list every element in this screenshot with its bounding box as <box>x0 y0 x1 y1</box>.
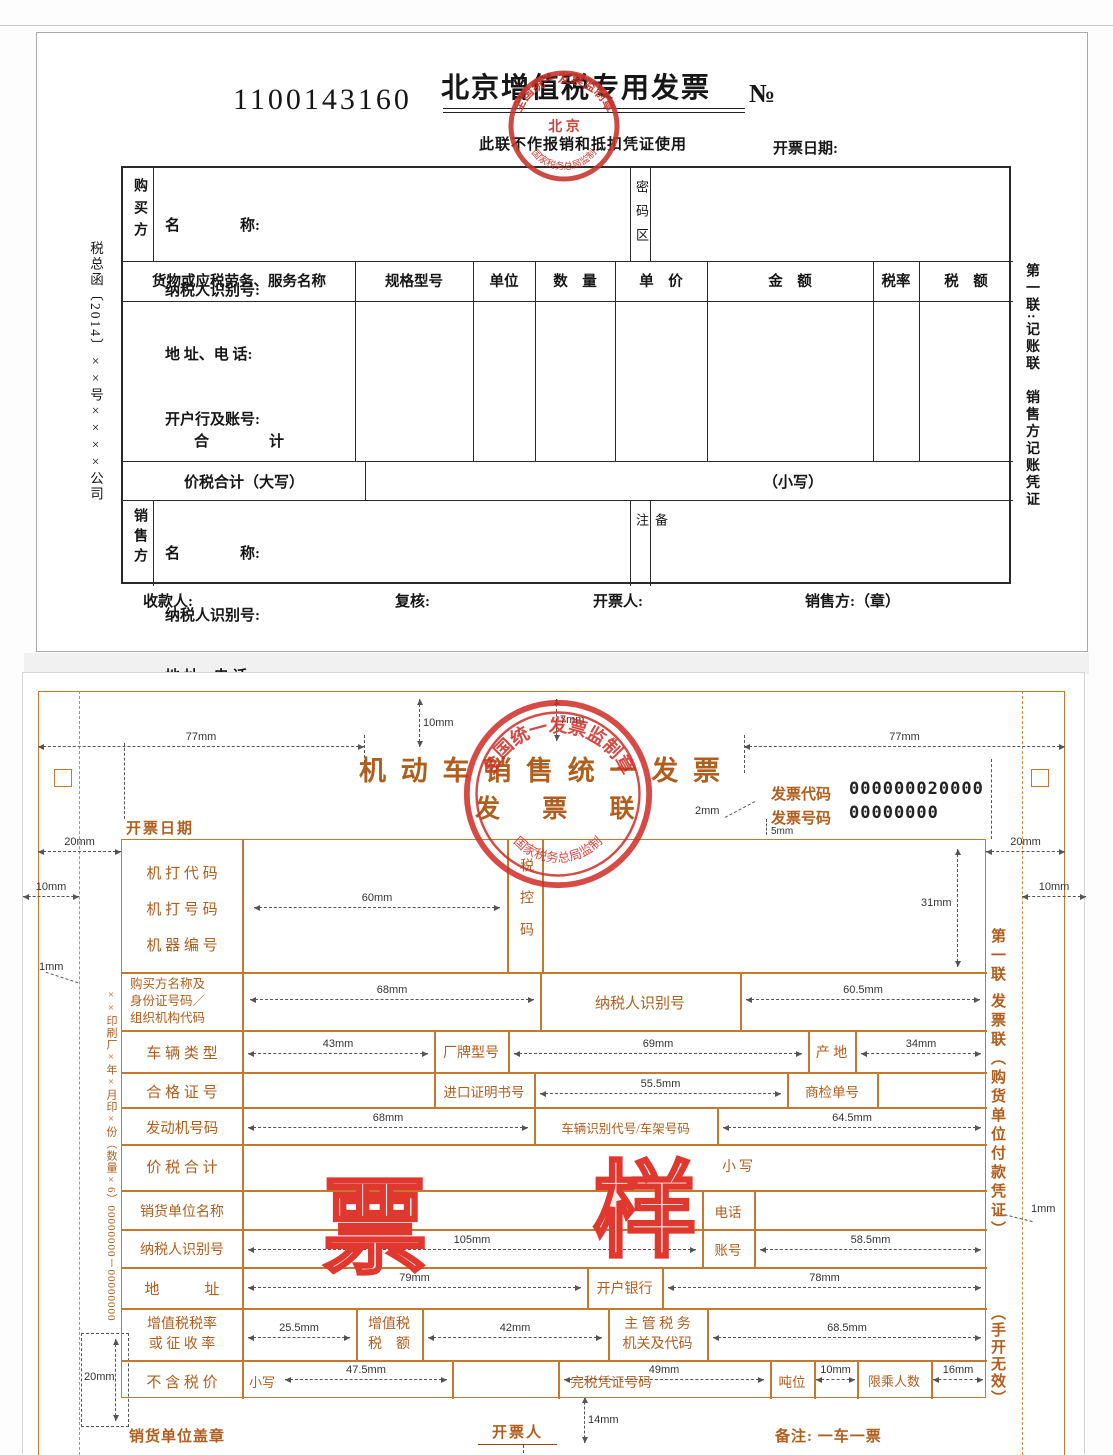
tax-authority-label-line1: 主 管 税 务 <box>608 1315 707 1335</box>
dim-line <box>428 1337 602 1338</box>
seller-name-label: 名 称: <box>165 544 260 565</box>
buyer-name-label: 名 称: <box>165 216 260 238</box>
dim-68-5mm: 68.5mm <box>713 1322 981 1338</box>
dim-line <box>254 907 500 908</box>
stamp-arc-top-text: 全国统一发票监制章 <box>509 70 618 115</box>
dim-64-5mm: 64.5mm <box>723 1112 981 1128</box>
grid-line <box>717 1107 719 1144</box>
checker-label: 复核: <box>395 590 430 611</box>
dim-line <box>38 851 121 852</box>
vat-invoice-page: 1100143160 北京增值税专用发票 № 此联不作报销和抵扣凭证使用 开票日… <box>36 32 1088 652</box>
dim-69mm: 69mm <box>514 1038 802 1054</box>
small-caps2-label: 小写 <box>249 1372 275 1391</box>
col-header-spec: 规格型号 <box>355 270 473 291</box>
tax-total-label: 价税合计（大写） <box>123 471 365 492</box>
vat-amount-label-line1: 增值税 <box>356 1315 422 1335</box>
seller-seal-label: 销售方:（章） <box>805 590 900 611</box>
vehicle-invoice-spec-page: 77mm 77mm 10mm 7mm 机 动 车 销 售 统 一 发 票 发 票… <box>22 672 1085 1454</box>
invoice-code-label: 发票代码 <box>771 783 831 804</box>
drawer-label: 开票人 <box>478 1421 557 1445</box>
issue-date-label: 开票日期 <box>126 817 194 838</box>
dim-16mm: 16mm <box>933 1364 983 1380</box>
dim-label: 68.5mm <box>827 1322 867 1335</box>
dim-label: 10mm <box>423 717 454 730</box>
dim-10mm-tonnage: 10mm <box>816 1364 855 1380</box>
grid-line <box>122 1267 987 1269</box>
margin-guide-right <box>1022 691 1023 1455</box>
grid-line <box>877 1072 879 1107</box>
dim-10mm-right: 10mm <box>1022 881 1086 897</box>
dim-tick <box>523 1445 524 1453</box>
buyer-info-label: 购买方名称及身份证号码／组织机构代码 <box>130 976 214 1027</box>
dim-20mm-left: 20mm <box>38 836 121 852</box>
tax-authority-stamp: 全国统一发票监制章 北 京 国家税务总局监制 <box>506 68 622 184</box>
dim-line <box>248 1127 528 1128</box>
seller-name-label: 销货单位名称 <box>128 1201 236 1221</box>
grid-line <box>630 168 631 261</box>
dim-line <box>23 896 79 897</box>
origin-label: 产 地 <box>808 1042 855 1062</box>
dim-label: 69mm <box>643 1038 674 1051</box>
dim-34mm: 34mm <box>861 1038 981 1054</box>
grid-line <box>123 500 1013 501</box>
dim-55-5mm: 55.5mm <box>540 1078 781 1094</box>
dim-77mm-left: 77mm <box>38 731 364 747</box>
taxpayer-id-label: 纳税人识别号 <box>540 992 740 1013</box>
dim-label: 105mm <box>454 1234 491 1247</box>
grid-line <box>615 261 616 461</box>
vat-amount-label-line2: 税 额 <box>356 1335 422 1355</box>
dim-label: 60mm <box>362 892 393 905</box>
grid-line <box>122 1107 987 1109</box>
grid-line <box>508 1030 510 1072</box>
seller-side-label: 销售方 <box>129 508 149 580</box>
dim-10mm-left: 10mm <box>23 881 79 897</box>
grid-line <box>355 261 356 461</box>
dim-line <box>744 746 1065 747</box>
remark-label: 备注 <box>632 513 670 575</box>
footer-note: 备注: 一车一票 <box>775 1425 882 1446</box>
passenger-limit-label: 限乘人数 <box>857 1371 931 1390</box>
dim-line <box>38 746 364 747</box>
dim-tick <box>124 743 125 819</box>
dim-label: 77mm <box>186 731 217 744</box>
scanned-invoice-samples: { "doc1": { "serial": "1100143160", "tit… <box>0 0 1113 1454</box>
spec-table: 机 打 代 码 机 打 号 码 机 器 编 号 税控码 60mm 购买方名称及身… <box>121 839 986 1398</box>
dim-line <box>668 1287 981 1288</box>
dim-47-5mm: 47.5mm <box>285 1364 447 1380</box>
dim-10mm-top: 10mm <box>419 699 454 747</box>
vin-label: 车辆识别代号/车架号码 <box>534 1118 717 1137</box>
seller-taxpayer-id-label: 纳税人识别号 <box>128 1239 236 1259</box>
dim-42mm: 42mm <box>428 1322 602 1338</box>
stamp-center-text: 北 京 <box>548 118 580 135</box>
dim-label: 20mm <box>1010 836 1041 849</box>
dim-20mm-vertical <box>115 1339 116 1421</box>
inspection-no-label: 商检单号 <box>787 1081 877 1101</box>
dim-label: 34mm <box>906 1038 937 1051</box>
dim-68mm-engine: 68mm <box>248 1112 528 1128</box>
payee-label: 收款人: <box>143 590 193 611</box>
machine-number-label: 机 打 号 码 <box>128 898 236 919</box>
copy-name-vertical-note: 第一联:记账联 销售方记账凭证 <box>1021 263 1041 573</box>
dim-60-5mm: 60.5mm <box>746 984 980 1000</box>
dim-line <box>250 999 534 1000</box>
grid-line <box>452 1360 454 1399</box>
dim-label: 78mm <box>809 1272 840 1285</box>
machine-code-label: 机 打 代 码 <box>128 862 236 883</box>
grid-line <box>630 500 631 586</box>
grid-line <box>122 972 987 974</box>
dim-2mm: 2mm <box>695 805 719 818</box>
stamp-arc-bottom-text: 国家税务总局监制 <box>511 834 605 865</box>
grid-line <box>122 1308 987 1310</box>
corner-mark-right <box>1031 769 1049 787</box>
seller-seal-label: 销货单位盖章 <box>129 1425 225 1446</box>
document-ref-vertical-note: 税总函〔2014〕××号××××公司 <box>85 241 105 561</box>
grid-line <box>122 1144 987 1146</box>
drawer-label: 开票人: <box>593 590 643 611</box>
price-without-tax-label: 不 含 税 价 <box>128 1371 236 1392</box>
machine-id-label: 机 器 编 号 <box>128 934 236 955</box>
grid-line <box>365 461 366 500</box>
dim-14mm: 14mm <box>584 1397 619 1443</box>
grid-line <box>534 1072 536 1107</box>
dim-tick <box>991 759 992 839</box>
dim-line <box>540 1093 781 1094</box>
dim-label: 68mm <box>377 984 408 997</box>
dim-1mm-right: 1mm <box>1031 1203 1055 1216</box>
dim-1mm-left: 1mm <box>39 961 63 974</box>
grid-line <box>754 1229 756 1267</box>
dim-20mm-right: 20mm <box>986 836 1065 852</box>
dim-label: 49mm <box>649 1364 680 1377</box>
dim-label: 58.5mm <box>851 1234 891 1247</box>
handwritten-invalid-note: （手开无效） <box>987 1305 1008 1435</box>
invoice-code-value: 000000020000 <box>849 779 984 799</box>
dim-line <box>713 1337 981 1338</box>
col-header-tax-rate: 税率 <box>873 270 919 291</box>
copy-name-vertical-note: 第一联 发票联（购货单位付款凭证） <box>987 928 1008 1328</box>
dim-label: 25.5mm <box>279 1322 319 1335</box>
grid-line <box>707 261 708 461</box>
dim-78mm: 78mm <box>668 1272 981 1288</box>
bank-label: 开户银行 <box>587 1278 662 1298</box>
engine-no-label: 发动机号码 <box>128 1117 236 1138</box>
dim-label: 77mm <box>889 731 920 744</box>
tax-authority-label-line2: 机关及代码 <box>608 1335 707 1355</box>
svg-text:国家税务总局监制: 国家税务总局监制 <box>529 147 599 173</box>
dim-label: 10mm <box>36 881 67 894</box>
small-caps-label: （小写） <box>763 471 823 492</box>
dim-label: 55.5mm <box>641 1078 681 1091</box>
dim-label: 42mm <box>500 1322 531 1335</box>
grid-line <box>662 1267 664 1308</box>
vehicle-type-label: 车 辆 类 型 <box>128 1042 236 1063</box>
brand-model-label: 厂牌型号 <box>434 1042 508 1062</box>
dim-label: 20mm <box>84 1371 115 1384</box>
dim-line <box>248 1337 350 1338</box>
svg-text:全国统一发票监制章: 全国统一发票监制章 <box>509 70 618 115</box>
dim-line <box>514 1053 802 1054</box>
grid-line <box>707 1308 709 1360</box>
total-row-label: 合 计 <box>123 430 355 451</box>
invoice-number-symbol: № <box>749 79 775 109</box>
buyer-address-label: 地 址、电 话: <box>165 345 260 367</box>
margin-guide-left <box>79 691 80 1455</box>
dim-label: 16mm <box>943 1364 974 1377</box>
tax-authority-stamp: 全国统一发票监制章 国家税务总局监制 <box>461 697 655 891</box>
col-header-quantity: 数 量 <box>535 270 615 291</box>
dim-line <box>248 1287 581 1288</box>
dim-60mm: 60mm <box>254 892 500 908</box>
grid-line <box>122 1190 987 1192</box>
grid-line <box>122 1229 987 1231</box>
dim-line <box>760 1249 981 1250</box>
dim-label: 20mm <box>64 836 95 849</box>
small-caps-label: 小写 <box>722 1156 756 1176</box>
vat-rate-label-line2: 或 征 收 率 <box>128 1335 236 1355</box>
grid-line <box>153 500 154 586</box>
vat-rate-label-line1: 增值税税率 <box>128 1315 236 1335</box>
dim-label: 14mm <box>588 1414 619 1427</box>
page-crop-edge <box>0 25 1113 26</box>
dim-line <box>1022 896 1086 897</box>
stamp-arc-bottom-text: 国家税务总局监制 <box>529 147 599 173</box>
col-header-tax-amount: 税 额 <box>919 270 1013 291</box>
dim-label: 47.5mm <box>346 1364 386 1377</box>
import-certificate-label: 进口证明书号 <box>434 1081 534 1101</box>
password-area-label: 密码区 <box>632 180 651 252</box>
dim-line <box>986 851 1065 852</box>
col-header-unit: 单位 <box>473 270 535 291</box>
grid-line <box>919 261 920 461</box>
dim-68mm: 68mm <box>250 984 534 1000</box>
col-header-unit-price: 单 价 <box>615 270 707 291</box>
dim-tick <box>744 735 745 773</box>
dim-line <box>723 1127 981 1128</box>
svg-text:国家税务总局监制: 国家税务总局监制 <box>511 834 605 865</box>
col-header-amount: 金 额 <box>707 270 873 291</box>
dim-line <box>564 1379 764 1380</box>
dim-label: 68mm <box>373 1112 404 1125</box>
account-no-label: 账号 <box>702 1239 754 1259</box>
dim-line <box>248 1053 428 1054</box>
dim-tick <box>766 819 767 835</box>
dim-line <box>746 999 980 1000</box>
dim-line <box>584 1397 585 1443</box>
tonnage-label: 吨位 <box>770 1371 814 1391</box>
grid-line <box>122 1030 987 1032</box>
grid-line <box>122 1072 987 1074</box>
invoice-number-value: 00000000 <box>849 803 939 823</box>
dim-line <box>933 1379 983 1380</box>
grid-line <box>535 261 536 461</box>
phone-label: 电话 <box>702 1201 754 1221</box>
dim-58-5mm: 58.5mm <box>760 1234 981 1250</box>
dim-5mm: 5mm <box>771 825 793 838</box>
col-header-item-name: 货物或应税劳务、服务名称 <box>123 270 355 291</box>
dim-label: 43mm <box>323 1038 354 1051</box>
total-with-tax-label: 价 税 合 计 <box>128 1156 236 1177</box>
grid-line <box>754 1190 756 1229</box>
dim-line <box>816 1379 855 1380</box>
grid-line <box>740 972 742 1030</box>
print-info-vertical-note: ××印刷厂×年×月印×份（数量×6）00000000－00000000 <box>103 989 119 1341</box>
dim-line <box>861 1053 981 1054</box>
grid-line <box>855 1030 857 1072</box>
issue-date-label: 开票日期: <box>773 137 838 158</box>
grid-line <box>473 261 474 461</box>
dim-label: 64.5mm <box>832 1112 872 1125</box>
invoice-serial: 1100143160 <box>233 83 412 117</box>
grid-line <box>422 1308 424 1360</box>
dim-label: 10mm <box>820 1364 851 1377</box>
certificate-no-label: 合 格 证 号 <box>128 1081 236 1102</box>
corner-mark-left <box>54 769 72 787</box>
buyer-bank-label: 开户行及账号: <box>165 410 260 432</box>
dim-line <box>419 699 420 747</box>
specimen-watermark-char: 样 <box>593 1161 697 1265</box>
grid-line <box>242 840 244 1399</box>
grid-line <box>153 168 154 261</box>
dim-line <box>115 1339 116 1421</box>
buyer-side-label: 购买方 <box>129 178 149 254</box>
grid-line <box>873 261 874 461</box>
dim-label: 10mm <box>1039 881 1070 894</box>
dim-25-5mm: 25.5mm <box>248 1322 350 1338</box>
dim-line <box>285 1379 447 1380</box>
dim-49mm: 49mm <box>564 1364 764 1380</box>
dim-43mm: 43mm <box>248 1038 428 1054</box>
dim-77mm-right: 77mm <box>744 731 1065 747</box>
invoice-table: 购买方 名 称: 纳税人识别号: 地 址、电 话: 开户行及账号: 密码区 货物… <box>121 166 1011 584</box>
specimen-watermark-char: 票 <box>323 1178 427 1282</box>
address-label: 地 址 <box>128 1278 236 1299</box>
dim-label: 60.5mm <box>843 984 883 997</box>
